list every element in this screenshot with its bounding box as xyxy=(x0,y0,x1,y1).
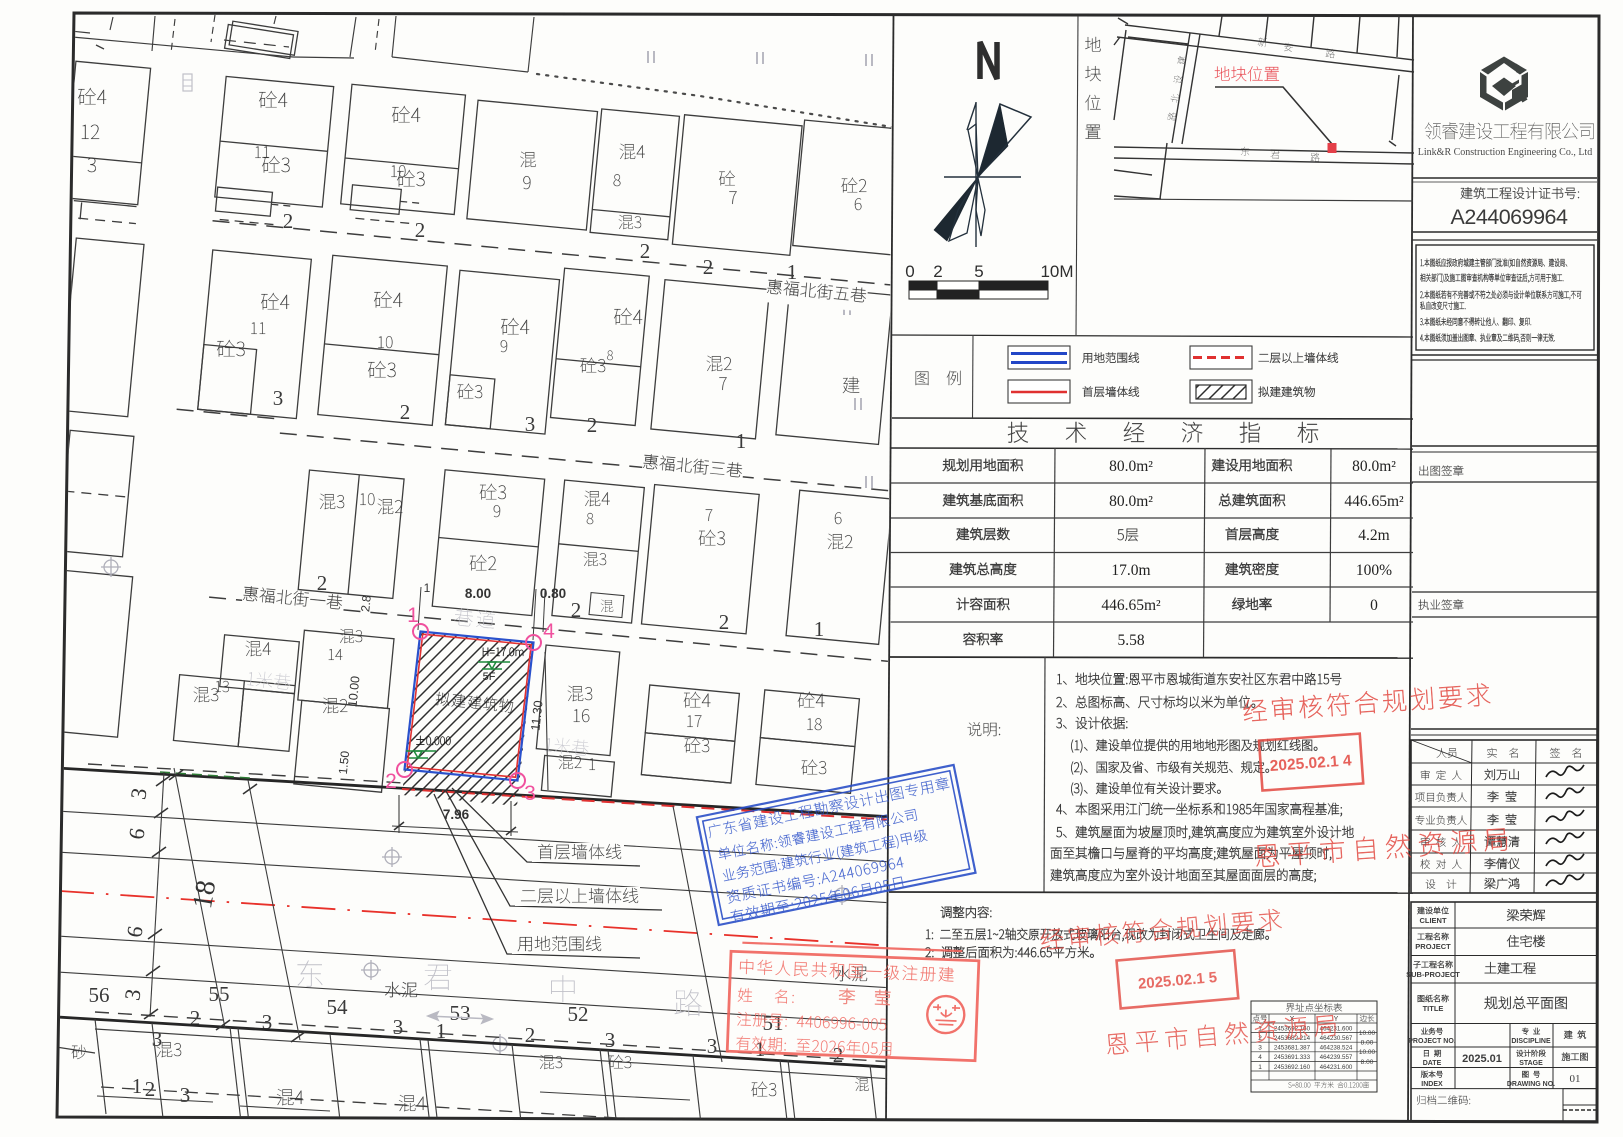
svg-text:2453692.160: 2453692.160 xyxy=(1274,1064,1311,1071)
svg-text:SUB-PROJECT: SUB-PROJECT xyxy=(1406,970,1460,979)
svg-text:10.00: 10.00 xyxy=(1359,1030,1376,1037)
svg-text:1: 1 xyxy=(787,260,798,284)
svg-text:3: 3 xyxy=(605,1028,616,1052)
svg-text:464231.600: 464231.600 xyxy=(1320,1025,1353,1032)
svg-text:52: 52 xyxy=(568,1002,589,1026)
svg-text:464239.557: 464239.557 xyxy=(1320,1054,1353,1061)
svg-text:2: 2 xyxy=(283,209,294,233)
svg-text:3: 3 xyxy=(273,386,284,410)
svg-text:10.00: 10.00 xyxy=(1359,1049,1376,1056)
svg-text:2025.01: 2025.01 xyxy=(1462,1053,1502,1065)
svg-text:1.50: 1.50 xyxy=(336,750,352,775)
svg-text:DRAWING NO.: DRAWING NO. xyxy=(1507,1081,1555,1088)
svg-text:CLIENT: CLIENT xyxy=(1419,916,1447,925)
svg-text:Link&R Construction Engineerin: Link&R Construction Engineering Co., Ltd xyxy=(1418,147,1592,158)
svg-text:54: 54 xyxy=(327,995,349,1019)
svg-text:1: 1 xyxy=(736,429,747,453)
svg-text:8.00: 8.00 xyxy=(1361,1059,1374,1066)
svg-text:PROJECT: PROJECT xyxy=(1415,942,1451,951)
svg-text:56: 56 xyxy=(89,983,110,1007)
svg-text:0: 0 xyxy=(1370,597,1378,614)
svg-text:2: 2 xyxy=(640,239,651,263)
svg-text:2: 2 xyxy=(719,610,730,634)
svg-text:2: 2 xyxy=(145,1077,156,1101)
svg-text:TITLE: TITLE xyxy=(1423,1004,1444,1013)
svg-text:DISCIPLINE: DISCIPLINE xyxy=(1511,1038,1551,1045)
svg-text:2453681.387: 2453681.387 xyxy=(1274,1045,1311,1052)
svg-text:STAGE: STAGE xyxy=(1519,1060,1543,1067)
svg-text:2: 2 xyxy=(400,400,411,424)
svg-text:A244069964: A244069964 xyxy=(1451,205,1568,229)
svg-text:2: 2 xyxy=(415,218,426,242)
svg-text:1: 1 xyxy=(424,581,431,595)
svg-text:18: 18 xyxy=(187,878,222,911)
svg-text:100%: 100% xyxy=(1356,562,1392,579)
svg-text:DATE: DATE xyxy=(1423,1060,1442,1067)
svg-text:80.0m²: 80.0m² xyxy=(1352,458,1396,475)
svg-text:Y: Y xyxy=(1334,1016,1339,1023)
svg-text:2: 2 xyxy=(587,413,598,437)
svg-text:3: 3 xyxy=(1258,1045,1262,1052)
svg-text:3: 3 xyxy=(393,1015,404,1039)
svg-text:5F: 5F xyxy=(483,671,496,683)
svg-text:2: 2 xyxy=(933,262,942,281)
svg-text:464238.524: 464238.524 xyxy=(1320,1045,1353,1052)
svg-text:01: 01 xyxy=(1570,1073,1581,1085)
svg-text:80.0m²: 80.0m² xyxy=(1109,493,1153,510)
svg-text:10M: 10M xyxy=(1040,262,1073,281)
svg-text:5.58: 5.58 xyxy=(1117,632,1144,649)
svg-text:8.00: 8.00 xyxy=(1361,1040,1374,1047)
svg-text:0.80: 0.80 xyxy=(540,586,566,601)
svg-text:464230.567: 464230.567 xyxy=(1320,1035,1353,1042)
svg-text:446.65m²: 446.65m² xyxy=(1101,597,1161,614)
svg-text:0: 0 xyxy=(905,262,914,281)
svg-text:80.0m²: 80.0m² xyxy=(1109,458,1153,475)
svg-text:464231.600: 464231.600 xyxy=(1320,1064,1353,1071)
svg-text:2: 2 xyxy=(317,571,328,595)
svg-text:2: 2 xyxy=(703,255,714,279)
svg-text:17.0m: 17.0m xyxy=(1111,562,1150,579)
svg-text:4: 4 xyxy=(543,620,555,643)
svg-text:1: 1 xyxy=(132,1074,143,1098)
svg-text:3: 3 xyxy=(707,1034,718,1058)
svg-text:1: 1 xyxy=(407,604,419,627)
svg-text:2.8: 2.8 xyxy=(358,594,374,612)
svg-text:8.00: 8.00 xyxy=(465,586,491,601)
svg-text:2: 2 xyxy=(525,1023,536,1047)
svg-text:3: 3 xyxy=(525,412,536,436)
svg-text:1: 1 xyxy=(1258,1064,1262,1071)
svg-text:2: 2 xyxy=(385,770,397,793)
svg-text:1: 1 xyxy=(814,617,825,641)
svg-text:PROJECT NO.: PROJECT NO. xyxy=(1408,1038,1456,1045)
svg-text:5: 5 xyxy=(974,262,983,281)
svg-text:2453682.214: 2453682.214 xyxy=(1274,1035,1311,1042)
svg-text:4: 4 xyxy=(1258,1054,1262,1061)
svg-text:3: 3 xyxy=(180,1083,191,1107)
svg-text:INDEX: INDEX xyxy=(1421,1081,1443,1088)
svg-text:2453691.333: 2453691.333 xyxy=(1274,1054,1311,1061)
svg-text:3: 3 xyxy=(524,782,536,805)
svg-text:446.65m²: 446.65m² xyxy=(1344,493,1404,510)
svg-text:2: 2 xyxy=(571,598,582,622)
svg-text:53: 53 xyxy=(450,1001,471,1025)
svg-text:55: 55 xyxy=(209,982,230,1006)
svg-text:4.2m: 4.2m xyxy=(1358,527,1389,544)
